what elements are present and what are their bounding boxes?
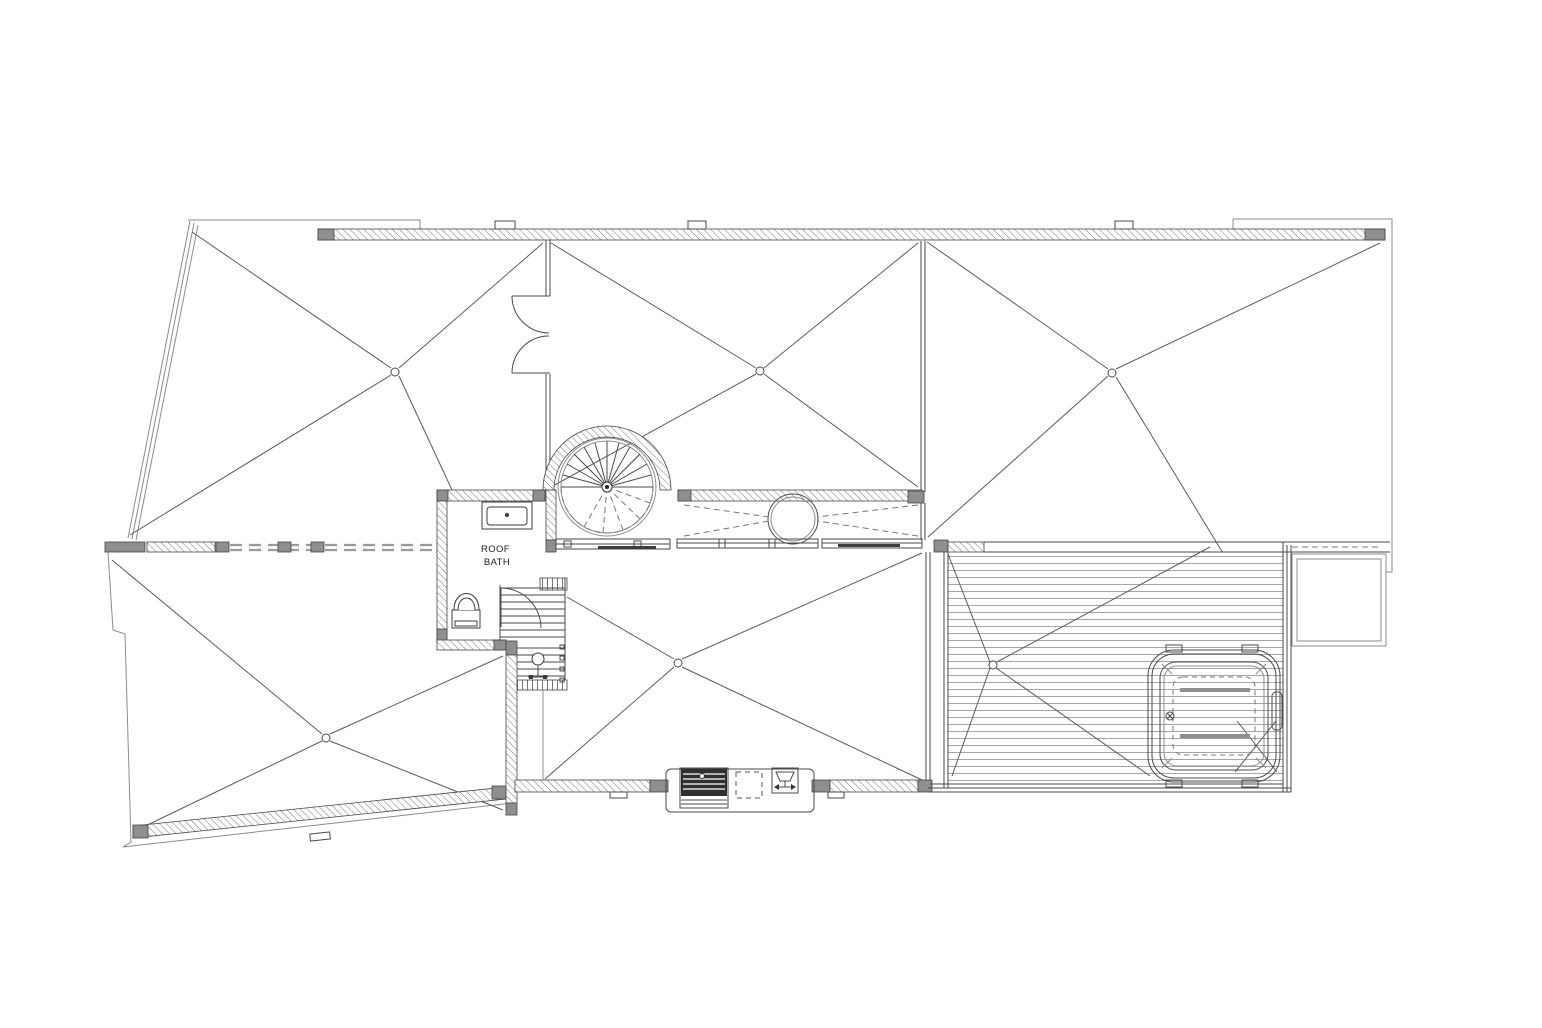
lower-roof-step bbox=[1292, 554, 1386, 646]
wall-tab bbox=[828, 792, 844, 798]
stair-threshold bbox=[556, 539, 670, 549]
plan-svg: ROOF BATH bbox=[0, 0, 1542, 1028]
tub-seat bbox=[1180, 688, 1250, 692]
counter-opening bbox=[736, 772, 762, 798]
deck-boards bbox=[948, 552, 1283, 784]
handrail-post bbox=[528, 653, 548, 679]
wall-tab bbox=[610, 792, 627, 798]
skylight bbox=[768, 494, 818, 544]
parapet-wall bbox=[318, 221, 1385, 240]
stair-treads-below bbox=[584, 487, 650, 533]
outdoor-sink bbox=[772, 768, 798, 793]
roof-section-upper-left bbox=[130, 232, 543, 535]
roof-apex bbox=[674, 659, 682, 667]
roof-apex bbox=[756, 367, 764, 375]
sink bbox=[482, 502, 532, 529]
sliding-door-panel bbox=[838, 544, 900, 547]
room-label: ROOF BATH bbox=[481, 544, 513, 568]
roof-bath-room: ROOF BATH bbox=[437, 490, 545, 650]
grill bbox=[680, 768, 728, 808]
roof-apex bbox=[1108, 369, 1116, 377]
dashed-wall bbox=[105, 542, 447, 552]
roof-section-lower-middle bbox=[515, 552, 932, 798]
stair-door-swing bbox=[501, 588, 541, 628]
toilet bbox=[452, 594, 480, 629]
double-door bbox=[512, 240, 550, 490]
tub-seat bbox=[1180, 734, 1250, 738]
spiral-staircase bbox=[543, 426, 671, 552]
corridor bbox=[677, 490, 924, 548]
door-swing-arc bbox=[512, 296, 549, 333]
wall-tab bbox=[310, 832, 331, 841]
roof-opening-lines bbox=[684, 505, 918, 536]
deck-drain bbox=[989, 661, 997, 669]
roof-vent bbox=[688, 221, 706, 229]
wall-corner-block bbox=[1365, 229, 1385, 240]
roof-apex bbox=[322, 734, 330, 742]
roof-vent bbox=[1115, 221, 1133, 229]
roof-vent bbox=[495, 221, 515, 229]
roof-apex bbox=[391, 368, 399, 376]
outdoor-kitchen bbox=[666, 768, 814, 812]
door-swing-arc bbox=[512, 336, 549, 373]
deck bbox=[928, 540, 1390, 792]
roof-plan-drawing: ROOF BATH bbox=[0, 0, 1542, 1028]
wall-corner-block bbox=[318, 229, 334, 240]
